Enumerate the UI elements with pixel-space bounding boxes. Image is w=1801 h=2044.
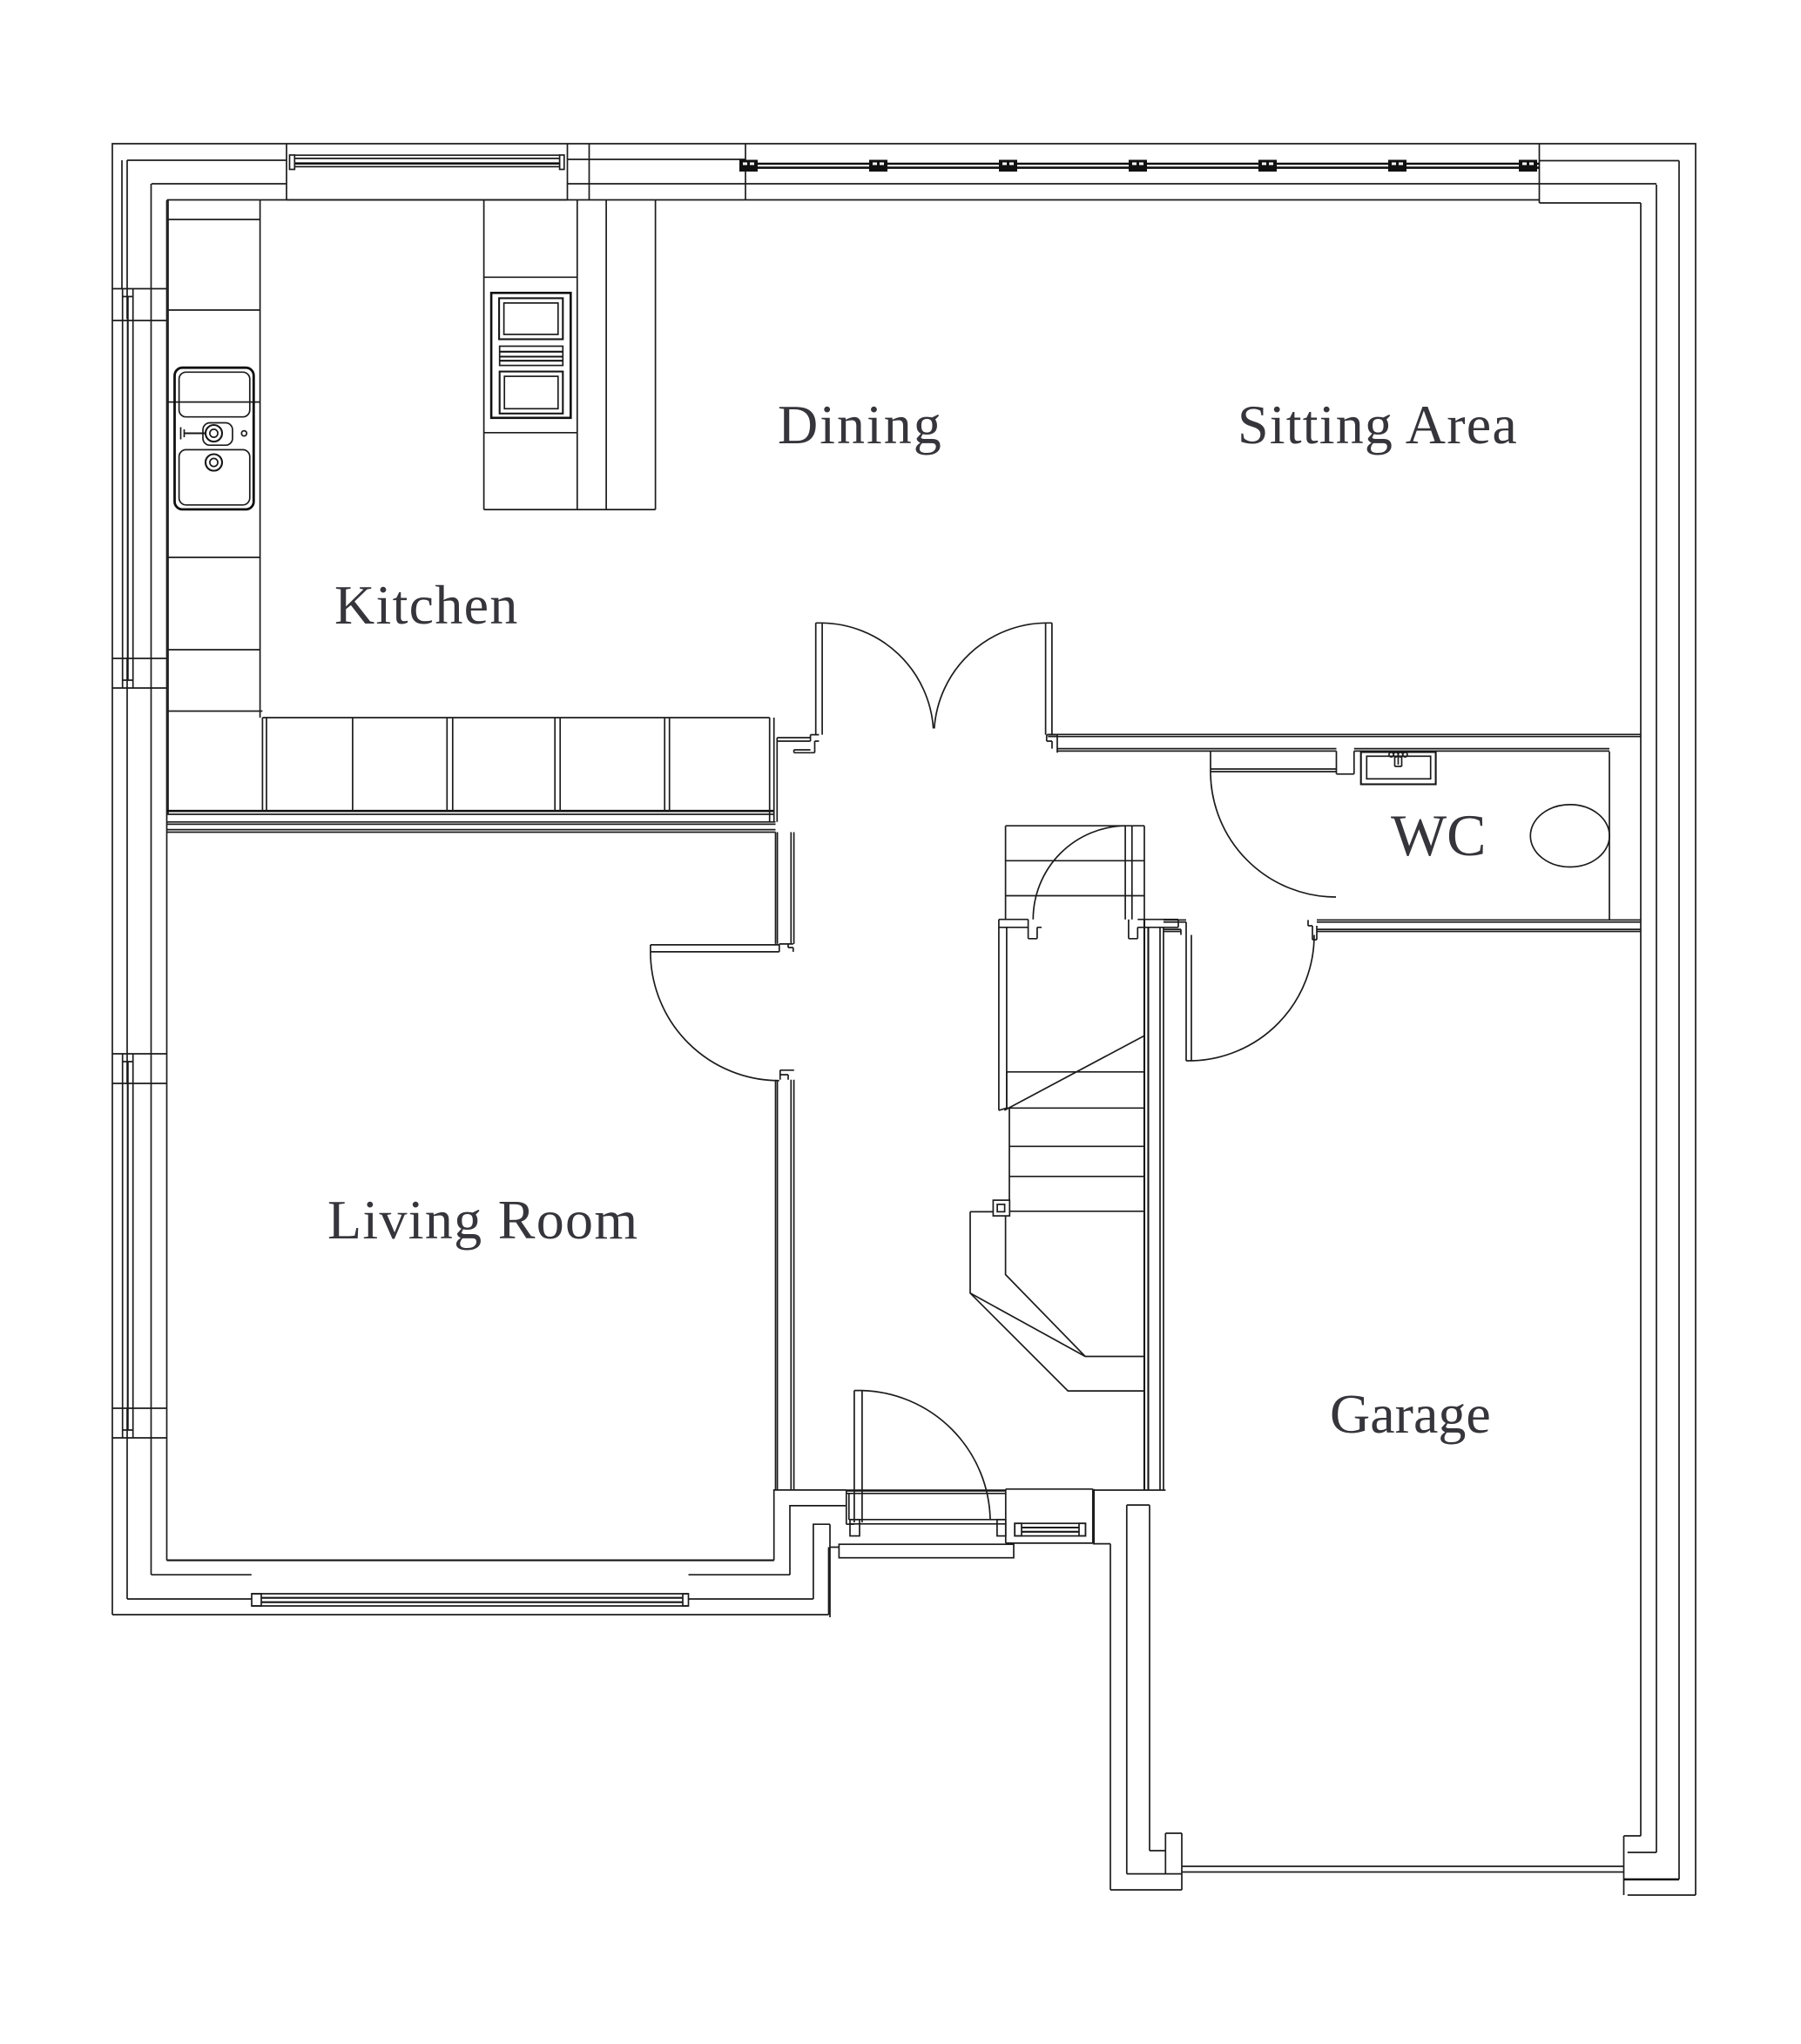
svg-text:Garage: Garage	[1330, 1383, 1491, 1445]
svg-text:WC: WC	[1391, 802, 1487, 868]
svg-text:Dining: Dining	[778, 394, 943, 455]
svg-text:Sitting Area: Sitting Area	[1238, 394, 1518, 455]
svg-text:Living Room: Living Room	[327, 1189, 638, 1251]
svg-text:Kitchen: Kitchen	[334, 574, 519, 636]
